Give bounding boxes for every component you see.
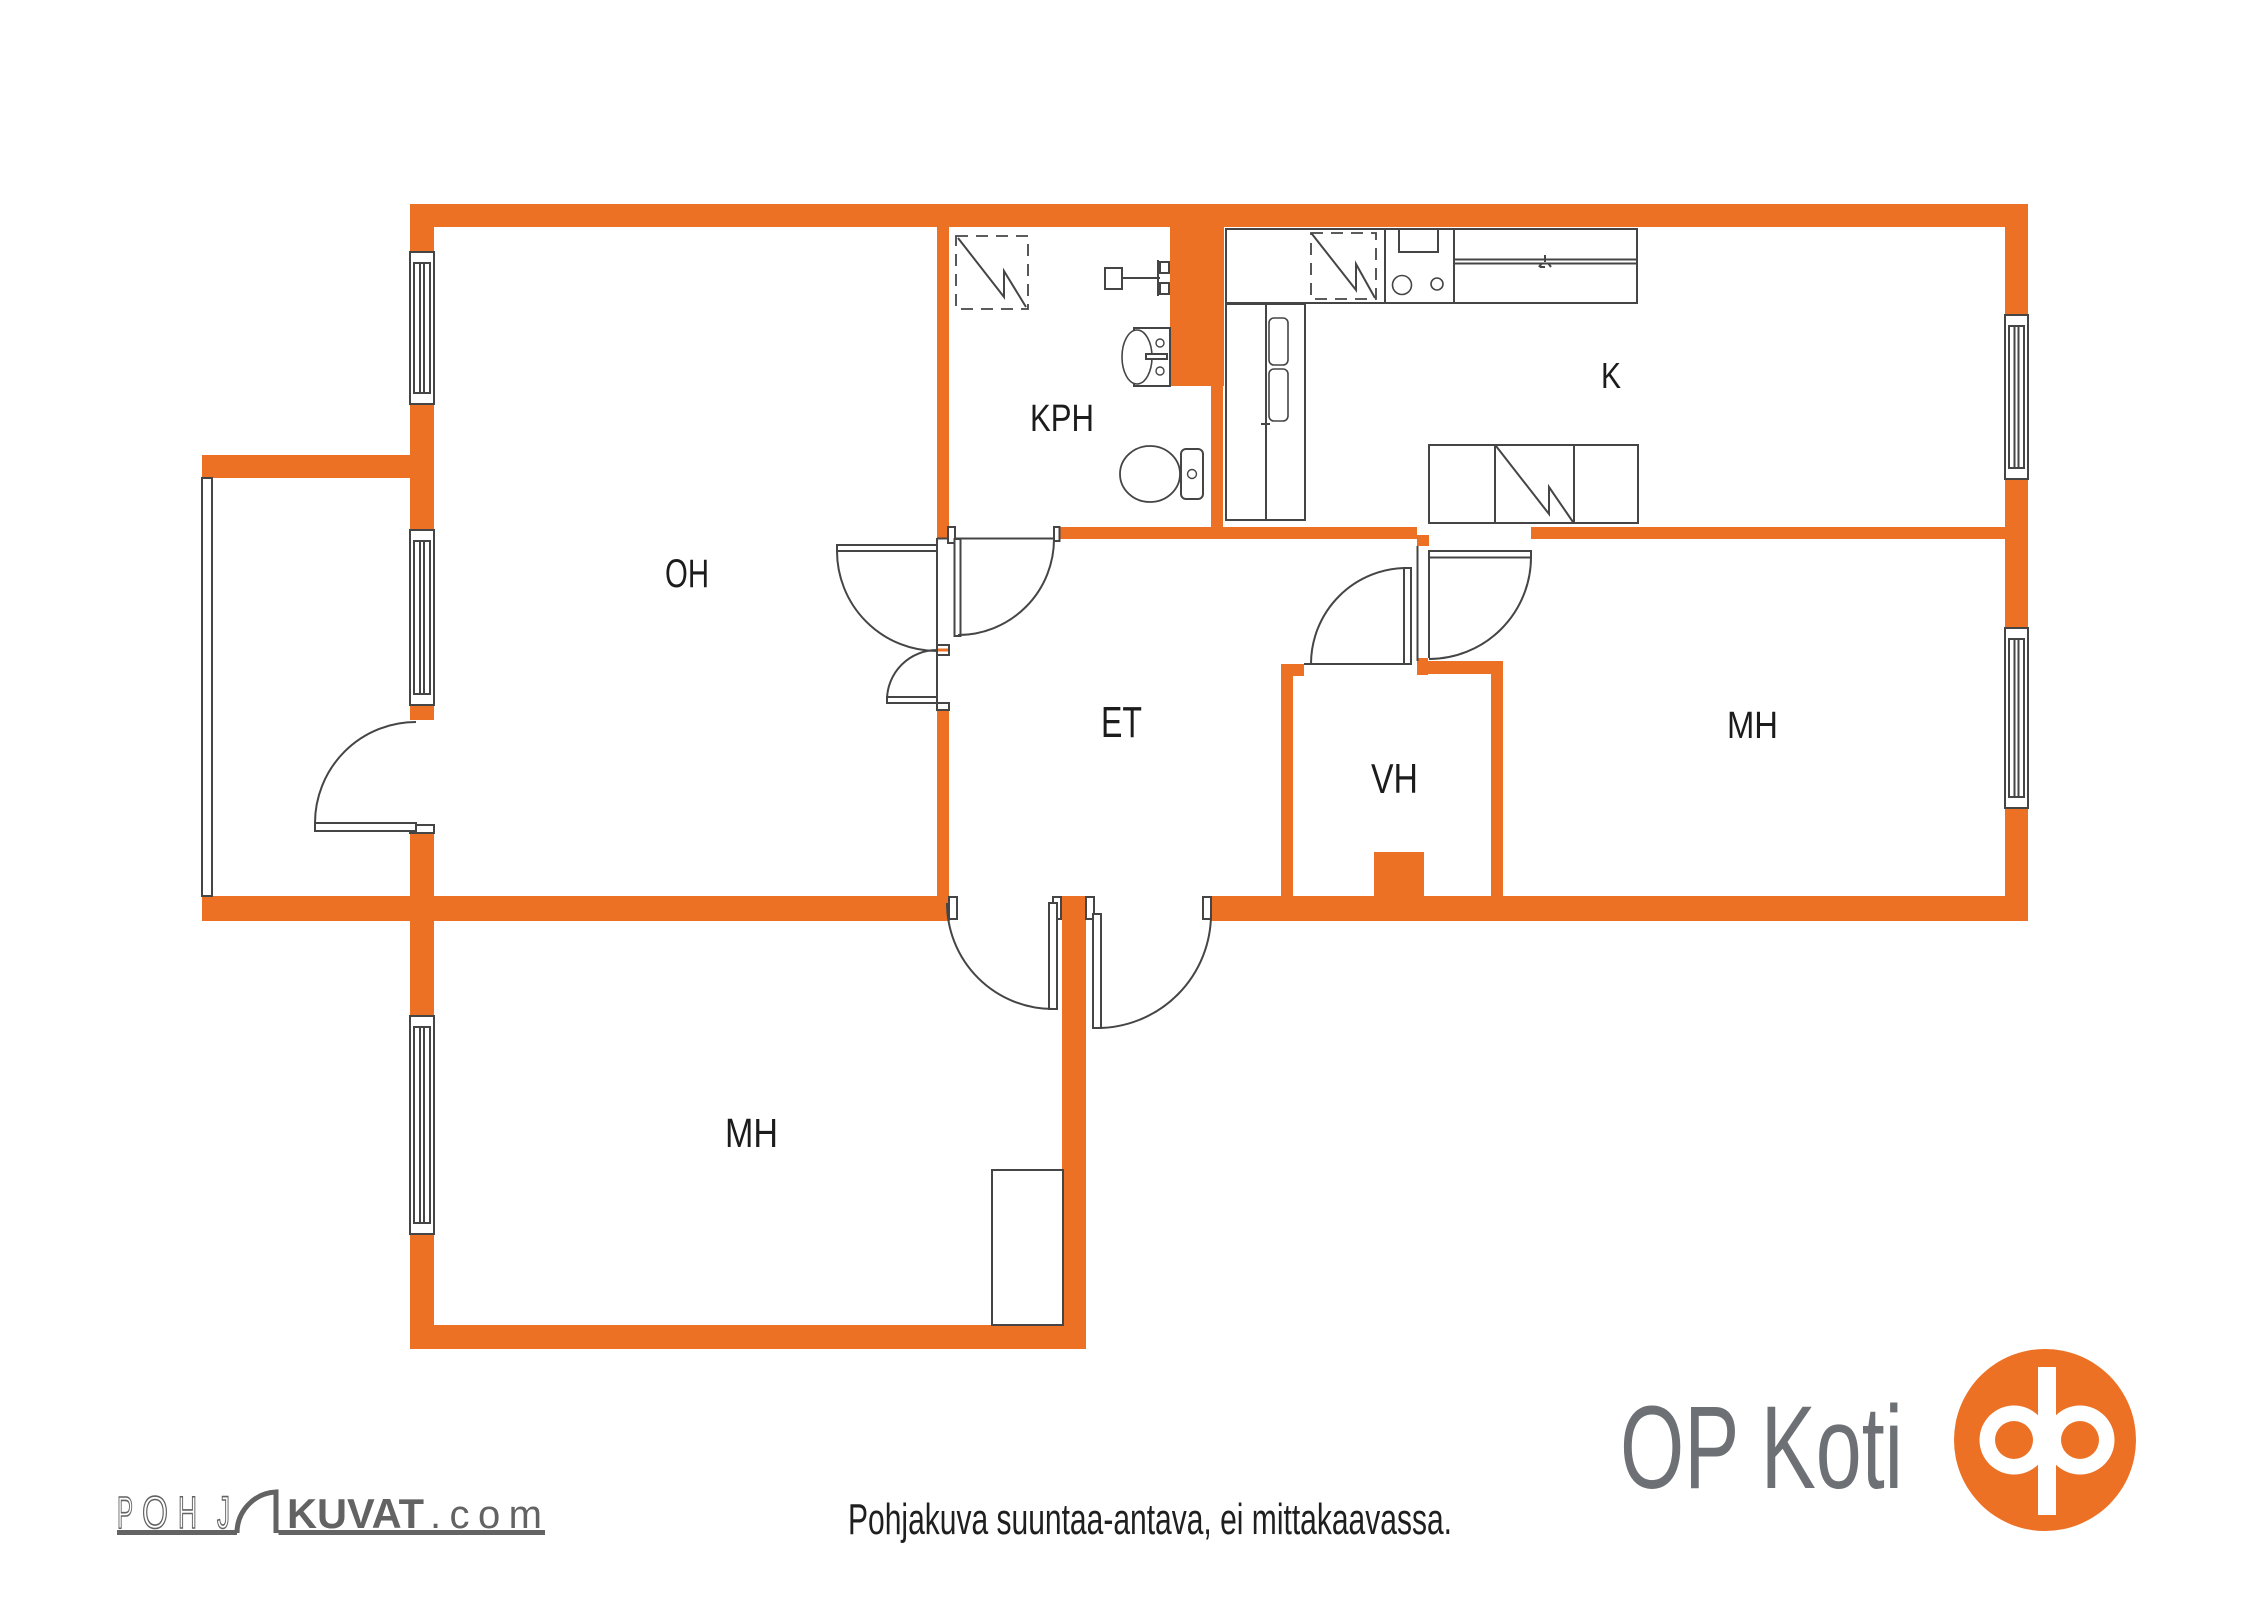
svg-text:MH: MH bbox=[725, 1110, 778, 1156]
svg-text:KPH: KPH bbox=[1030, 398, 1094, 440]
svg-text:OP Koti: OP Koti bbox=[1620, 1382, 1903, 1514]
svg-text:K: K bbox=[1601, 355, 1621, 396]
svg-text:ET: ET bbox=[1101, 698, 1142, 747]
svg-text:Pohjakuva suuntaa-antava, ei m: Pohjakuva suuntaa-antava, ei mittakaavas… bbox=[848, 1495, 1452, 1544]
svg-text:MH: MH bbox=[1727, 705, 1778, 747]
svg-text:KUVAT: KUVAT bbox=[287, 1490, 424, 1537]
svg-text:VH: VH bbox=[1371, 755, 1418, 802]
svg-text:OH: OH bbox=[665, 552, 709, 596]
